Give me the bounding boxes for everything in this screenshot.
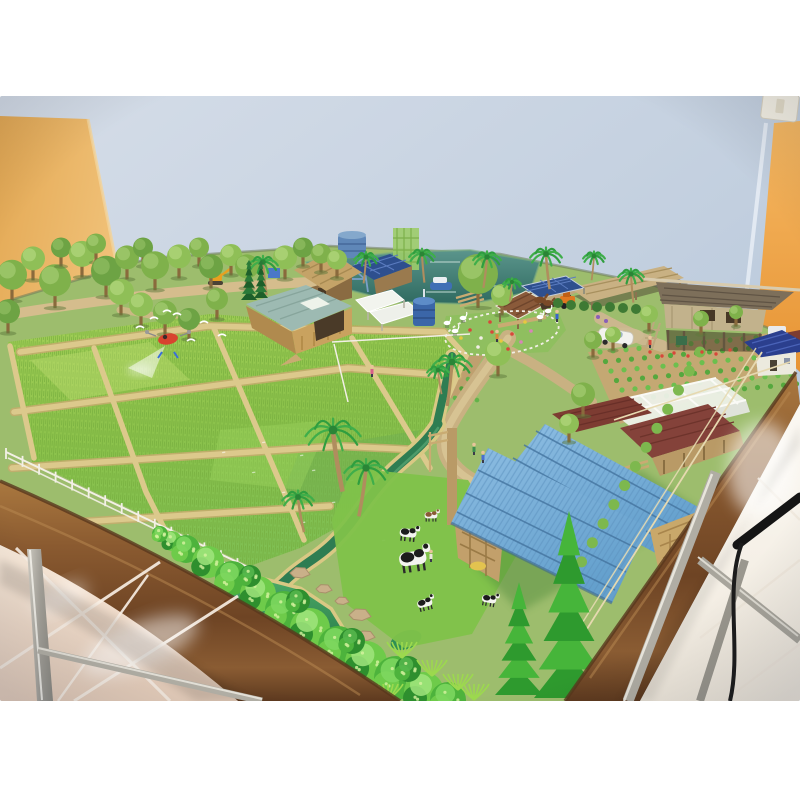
diorama-photo <box>0 0 800 800</box>
vignette <box>0 96 800 701</box>
photo-viewer <box>0 0 800 800</box>
